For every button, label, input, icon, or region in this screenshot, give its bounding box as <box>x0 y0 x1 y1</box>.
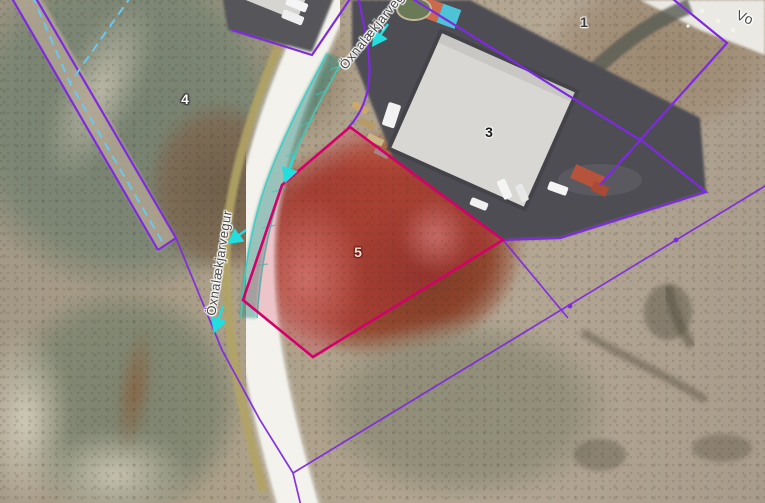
parcel-label-5: 5 <box>354 244 362 260</box>
map-canvas[interactable]: Öxnalækjarvegur Öxnalækjarvegur Vo 1 3 4… <box>0 0 765 503</box>
parcel-label-4: 4 <box>181 91 189 107</box>
map-overlay <box>0 0 765 503</box>
terrain-gully <box>574 284 752 471</box>
parcel-label-3: 3 <box>485 124 493 140</box>
parcel-label-1: 1 <box>580 14 588 30</box>
